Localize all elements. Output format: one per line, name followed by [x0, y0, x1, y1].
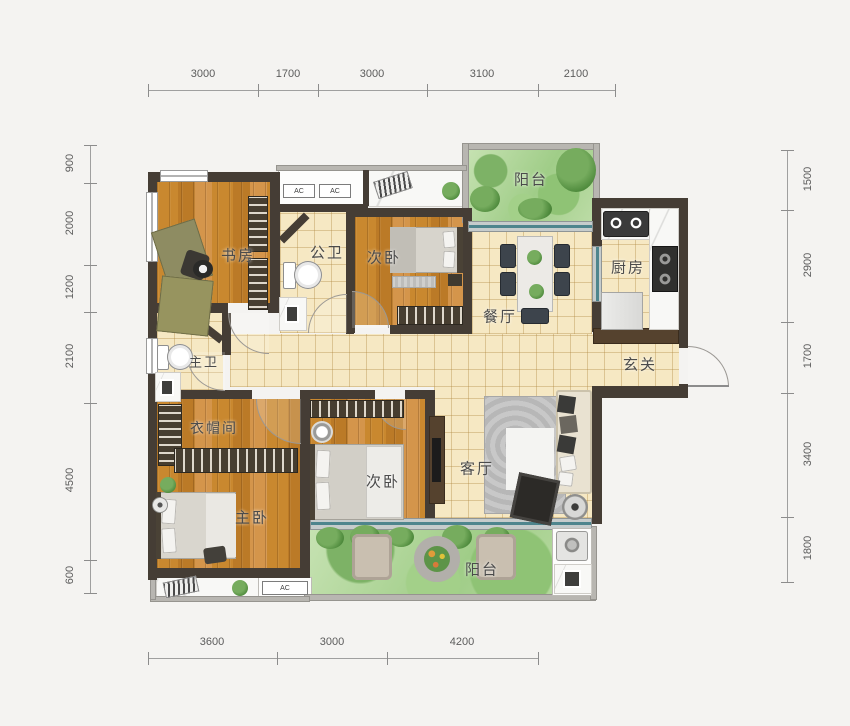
dim-left-2: 2000	[64, 191, 76, 255]
dim-left-3: 1200	[64, 255, 76, 319]
dining-table-plant	[529, 284, 544, 299]
floor-plan-canvas: 3000 1700 3000 3100 2100 3600 3000 4200 …	[0, 0, 850, 726]
dim-right-2: 2900	[802, 233, 814, 297]
platform-plant	[232, 580, 248, 596]
dimension-line-top	[148, 90, 615, 91]
dim-left-6: 600	[64, 543, 76, 607]
dimension-tick	[148, 652, 149, 665]
bedroom2-bottom-pillow	[315, 482, 330, 511]
dimension-tick	[318, 84, 319, 97]
dimension-tick	[84, 593, 97, 594]
ac-unit-box: AC	[262, 581, 308, 595]
wall-hall-bottom-3	[405, 390, 435, 399]
dimension-tick	[84, 312, 97, 313]
cloakroom-rack-bottom	[174, 448, 298, 473]
dining-bench	[521, 308, 549, 324]
bedroom2-top-wardrobe	[397, 306, 463, 325]
sofa-cushion	[557, 435, 577, 455]
dining-chair	[554, 272, 570, 296]
dim-top-4: 3100	[450, 68, 514, 80]
dimension-tick	[84, 403, 97, 404]
dim-right-4: 3400	[802, 422, 814, 486]
dim-bottom-1: 3600	[180, 636, 244, 648]
master-bedroom-plant	[160, 477, 176, 493]
room-label-bedroom2-bottom: 次卧	[366, 471, 400, 492]
ac-unit-text: AC	[330, 188, 340, 195]
room-label-kitchen: 厨房	[611, 257, 645, 278]
master-bedroom-stool	[152, 497, 168, 513]
sofa-cushion	[559, 455, 577, 472]
dining-chair	[500, 272, 516, 296]
bedroom2-top-pillow	[442, 231, 455, 249]
bedroom2-top-nightstand	[448, 274, 462, 286]
room-label-balcony-top: 阳台	[514, 169, 548, 190]
kitchen-fridge	[601, 292, 643, 330]
dimension-tick	[84, 183, 97, 184]
ac-unit-text: AC	[280, 585, 290, 592]
study-bookshelf-lower	[248, 258, 268, 310]
dining-chair	[500, 244, 516, 268]
room-label-balcony-bottom: 阳台	[465, 559, 499, 580]
shoe-cabinet	[593, 328, 679, 344]
public-bath-toilet-bowl	[294, 261, 322, 289]
public-bath-faucet-icon	[285, 305, 299, 323]
bedroom2-top-headboard	[457, 227, 463, 273]
kitchen-sink-basin	[628, 215, 644, 231]
ac-unit-box: AC	[319, 184, 351, 198]
wall-living-right	[592, 398, 602, 524]
ac-unit-text: AC	[294, 188, 304, 195]
bedroom2-bottom-pillow	[315, 450, 330, 479]
study-desk-return	[156, 275, 214, 336]
dimension-tick	[615, 84, 616, 97]
dimension-tick	[781, 210, 794, 211]
wall-hall-bottom-2	[300, 390, 375, 399]
dim-top-2: 1700	[256, 68, 320, 80]
dimension-line-left	[90, 145, 91, 593]
platform-plant	[442, 182, 460, 200]
platform-bottom-edge	[150, 596, 310, 602]
wall-platform-divider	[363, 170, 369, 206]
room-label-master-bath: 主卫	[189, 352, 219, 371]
study-top-window	[160, 170, 208, 182]
balcony-top-sliding-door	[468, 221, 593, 232]
sofa-cushion	[557, 395, 576, 414]
dimension-tick	[84, 145, 97, 146]
dimension-tick	[84, 265, 97, 266]
kitchen-burner	[657, 271, 673, 287]
dim-left-4: 2100	[64, 324, 76, 388]
balcony-basin-faucet	[563, 570, 581, 588]
dim-right-1: 1500	[802, 147, 814, 211]
dim-bottom-3: 4200	[430, 636, 494, 648]
bedroom2-bottom-headboard	[310, 444, 315, 520]
master-bed-pillow	[161, 528, 177, 554]
dim-top-3: 3000	[340, 68, 404, 80]
dimension-tick	[781, 517, 794, 518]
kitchen-sink-basin	[608, 215, 624, 231]
wall-study-right	[270, 182, 280, 313]
bedroom2-top-rug	[392, 276, 436, 288]
dim-top-1: 3000	[171, 68, 235, 80]
dimension-tick	[781, 322, 794, 323]
dimension-tick	[781, 582, 794, 583]
balcony-top-bush	[470, 186, 500, 212]
study-monitor	[193, 260, 213, 278]
dining-table-plant	[527, 250, 542, 265]
room-label-bedroom2-top: 次卧	[367, 247, 401, 268]
platform-top-edge	[276, 165, 467, 171]
room-label-master-bedroom: 主卧	[235, 507, 269, 528]
balcony-top-bush	[518, 198, 552, 220]
dim-left-5: 4500	[64, 448, 76, 512]
room-label-public-bath: 公卫	[310, 242, 344, 263]
tv-screen	[432, 438, 441, 482]
room-label-cloakroom: 衣帽间	[190, 418, 238, 438]
room-label-study: 书房	[221, 245, 255, 266]
bedroom2-top-pillow	[442, 251, 455, 269]
dimension-tick	[277, 652, 278, 665]
dimension-tick	[84, 560, 97, 561]
sofa-cushion	[559, 415, 578, 434]
dim-bottom-2: 3000	[300, 636, 364, 648]
sofa-cushion	[557, 471, 574, 487]
washing-machine-door	[563, 536, 581, 554]
kitchen-burner	[657, 251, 673, 267]
dim-top-5: 2100	[544, 68, 608, 80]
dining-table	[517, 236, 553, 312]
balcony-top-bush	[556, 148, 596, 192]
dimension-tick	[781, 393, 794, 394]
wall-bedroom2top-top	[346, 208, 472, 217]
entry-door-leaf	[688, 385, 729, 387]
balcony-armchair	[352, 534, 392, 580]
dimension-tick	[781, 150, 794, 151]
wall-foyer-bottom	[592, 386, 688, 398]
master-bedroom-chair	[203, 546, 227, 565]
dimension-line-bottom	[148, 658, 538, 659]
balcony-bottom-bush	[316, 527, 344, 549]
wall-kitchen-top	[592, 198, 688, 208]
dimension-tick	[538, 652, 539, 665]
wall-master-bedroom2-divider	[300, 390, 310, 578]
entry-door-arc	[688, 346, 729, 387]
dining-chair	[554, 244, 570, 268]
wall-master-bottom	[148, 568, 308, 578]
wall-right-exterior	[679, 198, 688, 348]
bedroom2-bottom-mirror	[311, 421, 333, 443]
dimension-tick	[258, 84, 259, 97]
balcony-table-flowers	[424, 546, 450, 572]
wall-bedroom2top-bottom	[390, 325, 472, 334]
dim-left-1: 900	[64, 131, 76, 195]
dimension-tick	[148, 84, 149, 97]
dimension-tick	[427, 84, 428, 97]
living-side-table	[562, 494, 588, 520]
dim-right-3: 1700	[802, 324, 814, 388]
dimension-tick	[387, 652, 388, 665]
master-bath-faucet-icon	[160, 379, 174, 396]
ac-unit-box: AC	[283, 184, 315, 198]
bedroom2-bottom-wardrobe	[310, 400, 404, 418]
room-label-dining: 餐厅	[483, 306, 517, 327]
room-label-foyer: 玄关	[623, 354, 657, 375]
room-label-living: 客厅	[460, 458, 494, 479]
dim-right-5: 1800	[802, 516, 814, 580]
dimension-tick	[538, 84, 539, 97]
